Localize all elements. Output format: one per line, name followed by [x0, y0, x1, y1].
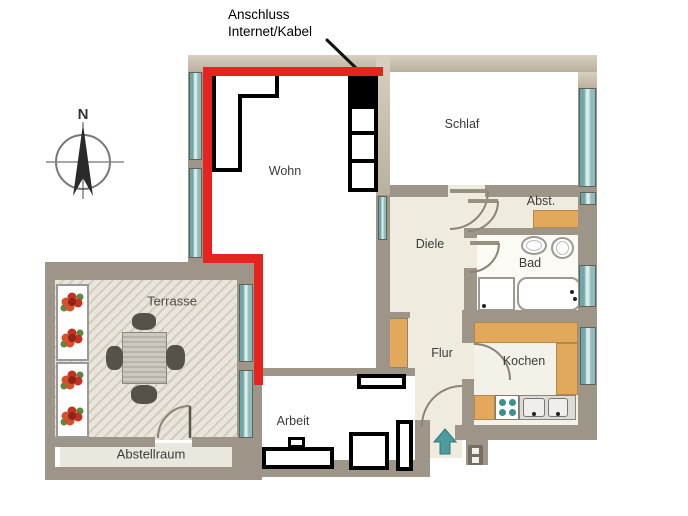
room-label-terrasse: Terrasse — [147, 294, 197, 309]
annotation-pointer-line — [327, 40, 357, 69]
shelf-cabinet — [348, 105, 378, 192]
internet-cable-connection-box — [348, 73, 378, 105]
room-label-diele: Diele — [416, 237, 445, 251]
room-label-flur: Flur — [431, 346, 453, 360]
compass-north-label: N — [78, 106, 89, 123]
flower-icon — [60, 290, 84, 314]
room-label-abstellraum: Abstellraum — [117, 447, 186, 462]
dining-table — [122, 332, 167, 384]
annotation-text: Anschluss Internet/Kabel — [228, 6, 312, 40]
doorbell-button — [472, 457, 479, 463]
entry-arrow-icon — [434, 429, 456, 454]
plan-overlay — [0, 0, 688, 516]
door-arc — [450, 191, 488, 229]
room-label-schlaf: Schlaf — [445, 117, 480, 131]
floor-plan: Wohn Schlaf Diele Abst. Bad Flur Kochen … — [0, 0, 688, 516]
highlight-line-vertical — [254, 254, 263, 385]
north-compass: N — [40, 100, 128, 204]
highlight-line-top — [203, 67, 383, 76]
door-arc — [468, 201, 498, 231]
room-label-arbeit: Arbeit — [277, 414, 310, 428]
room-label-abst: Abst. — [527, 194, 556, 208]
chair — [106, 346, 123, 370]
monitor — [288, 437, 305, 448]
door-arc — [422, 386, 462, 426]
door-arc — [158, 406, 190, 438]
annotation-line1: Anschluss — [228, 6, 312, 23]
annotation-line2: Internet/Kabel — [228, 23, 312, 40]
chair — [166, 345, 185, 370]
doorbell-button — [472, 448, 479, 454]
room-label-wohn: Wohn — [269, 164, 301, 178]
flower-icon — [60, 326, 84, 350]
chair — [131, 385, 157, 404]
room-label-bad: Bad — [519, 256, 541, 270]
sideboard — [357, 374, 406, 389]
flower-icon — [60, 404, 84, 428]
shelf-divider — [350, 159, 376, 163]
shelf-divider — [350, 131, 376, 135]
table-square — [349, 432, 389, 470]
flower-icon — [60, 368, 84, 392]
highlight-line-left — [203, 67, 212, 263]
cabinet-tall — [396, 420, 413, 471]
chair — [132, 313, 156, 330]
door-arc — [470, 243, 499, 272]
room-label-kochen: Kochen — [503, 354, 545, 368]
desk — [262, 447, 334, 469]
couch-outline — [214, 74, 277, 170]
